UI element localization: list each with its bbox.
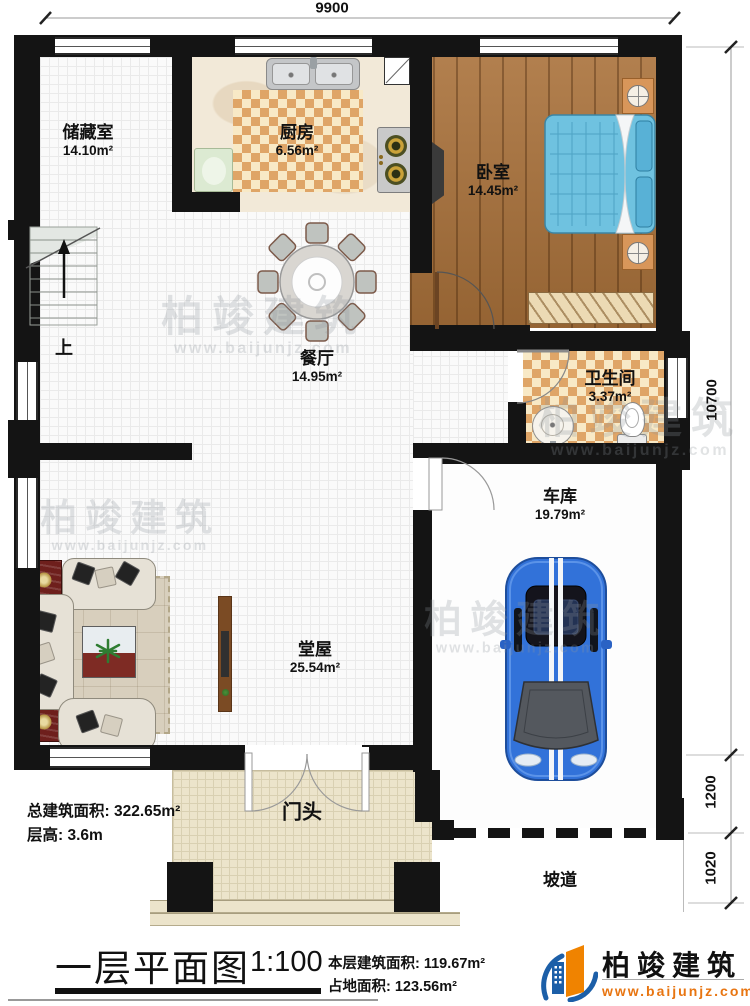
room-name: 储藏室 xyxy=(63,122,114,143)
room-area: 6.56m² xyxy=(276,143,319,160)
brand-website: www.baijunjz.com xyxy=(602,983,750,999)
plan-notes: 总建筑面积: 322.65m² 层高: 3.6m xyxy=(27,800,180,848)
room-area: 25.54m² xyxy=(290,660,340,677)
room-name: 厨房 xyxy=(276,122,319,143)
title-rule-thick xyxy=(55,988,321,994)
room-name: 车库 xyxy=(535,486,585,507)
room-name: 堂屋 xyxy=(290,639,340,660)
note-total-area: 总建筑面积: 322.65m² xyxy=(27,800,180,824)
room-area: 14.95m² xyxy=(292,369,342,386)
room-name: 餐厅 xyxy=(292,348,342,369)
room-label-garage: 车库 19.79m² xyxy=(535,486,585,524)
dimension-right-lower: 1020 xyxy=(703,851,720,884)
room-label-porch: 门头 xyxy=(282,796,322,825)
dimension-right-mid: 1200 xyxy=(703,775,720,808)
title-rule-thin xyxy=(8,999,378,1001)
brand-rule xyxy=(602,979,744,980)
floor-plan-canvas: 柏竣建筑 www.baijunjz.com 柏竣建筑 www.baijunjz.… xyxy=(0,0,750,1006)
room-label-dining: 餐厅 14.95m² xyxy=(292,348,342,386)
room-area: 19.79m² xyxy=(535,507,585,524)
room-label-kitchen: 厨房 6.56m² xyxy=(276,122,319,160)
brand-logo-icon xyxy=(538,940,598,1002)
room-area: 3.37m² xyxy=(585,389,636,406)
drawing-title: 一层平面图 xyxy=(55,938,250,992)
stairs-up-label: 上 xyxy=(55,334,73,360)
brand-name: 柏竣建筑 xyxy=(602,944,742,984)
room-label-ramp: 坡道 xyxy=(543,866,577,891)
note-floor-height: 层高: 3.6m xyxy=(27,824,180,848)
room-label-storage: 储藏室 14.10m² xyxy=(63,122,114,160)
title-areas: 本层建筑面积: 119.67m² 占地面积: 123.56m² xyxy=(328,953,485,999)
land-area: 占地面积: 123.56m² xyxy=(328,976,485,999)
dimension-top-width: 9900 xyxy=(315,0,348,17)
this-floor-area: 本层建筑面积: 119.67m² xyxy=(328,953,485,976)
room-label-bathroom: 卫生间 3.37m² xyxy=(585,368,636,406)
room-area: 14.10m² xyxy=(63,143,114,160)
room-area: 14.45m² xyxy=(468,183,518,200)
dimension-right-total: 10700 xyxy=(704,379,721,421)
drawing-scale: 1:100 xyxy=(250,946,323,979)
room-name: 卧室 xyxy=(468,162,518,183)
room-label-hall: 堂屋 25.54m² xyxy=(290,639,340,677)
room-name: 卫生间 xyxy=(585,368,636,389)
room-label-bedroom: 卧室 14.45m² xyxy=(468,162,518,200)
